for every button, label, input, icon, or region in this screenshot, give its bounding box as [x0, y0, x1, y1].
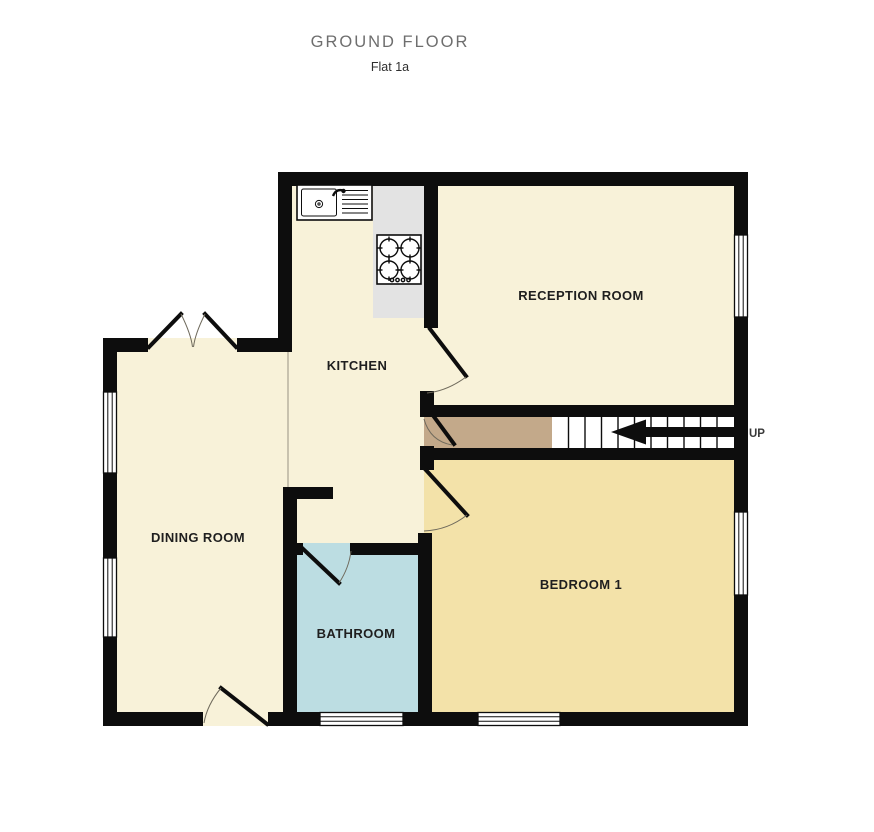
window-bathroom	[320, 713, 403, 726]
room-label-kitchen: KITCHEN	[327, 358, 388, 373]
window-bedroom-bottom	[478, 713, 560, 726]
page-subtitle: Flat 1a	[371, 60, 409, 74]
room-label-dining: DINING ROOM	[151, 530, 245, 545]
page-title: GROUND FLOOR	[311, 33, 470, 51]
window-bedroom-side	[735, 512, 748, 595]
sink-drainer-icon	[297, 185, 372, 220]
window-dining-2	[104, 558, 117, 637]
room-label-bedroom: BEDROOM 1	[540, 577, 622, 592]
room-label-bathroom: BATHROOM	[317, 626, 396, 641]
window-reception	[735, 235, 748, 317]
stairs-up-label: UP	[749, 428, 765, 440]
floorplan-page: GROUND FLOOR Flat 1a KITCHEN RECEPTION R…	[0, 0, 874, 832]
hob-4-burner-icon	[377, 235, 421, 284]
floor-plan-canvas: GROUND FLOOR Flat 1a KITCHEN RECEPTION R…	[0, 0, 874, 832]
room-label-reception: RECEPTION ROOM	[518, 288, 644, 303]
dining-floor	[117, 487, 283, 712]
window-dining-1	[104, 392, 117, 473]
